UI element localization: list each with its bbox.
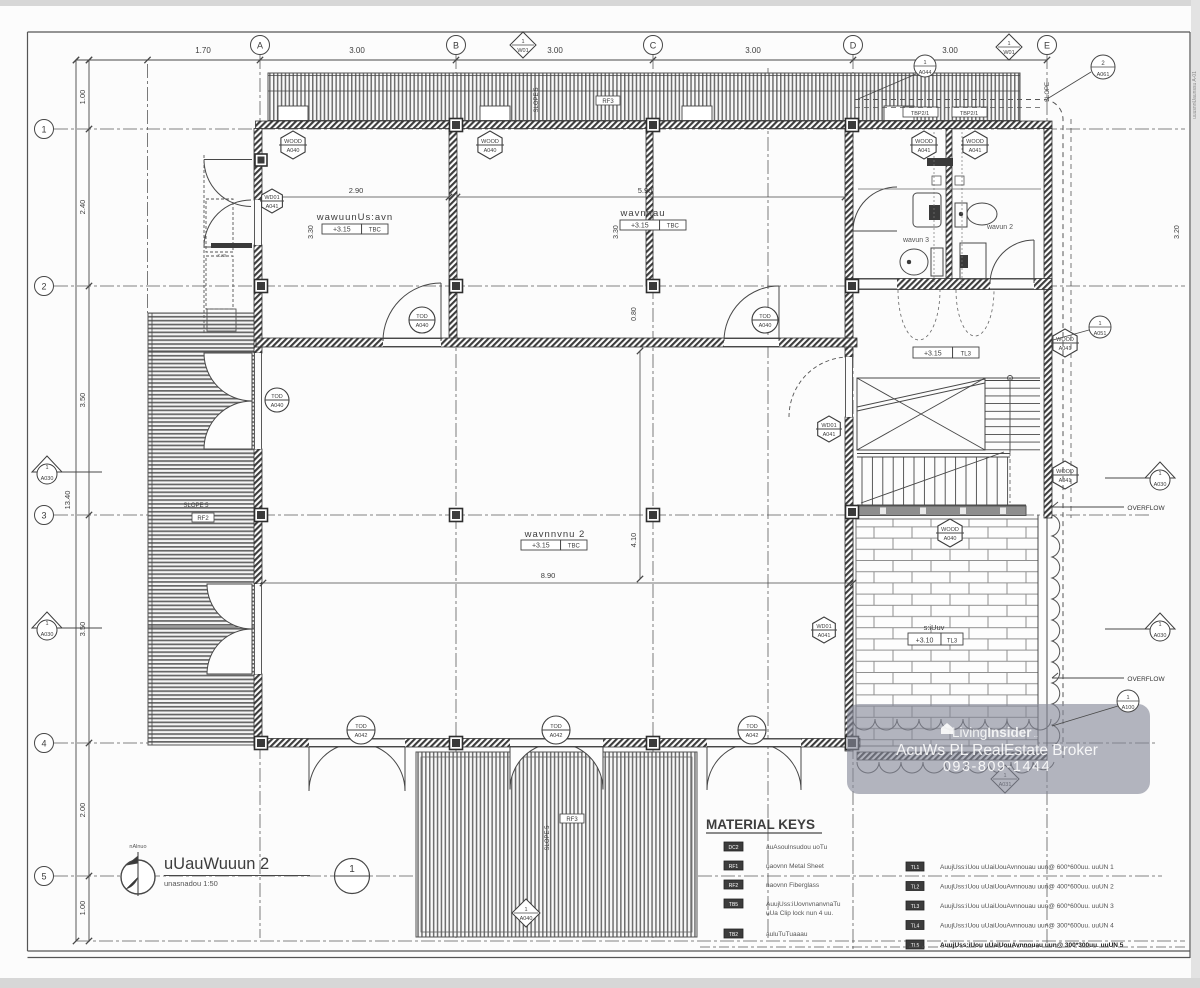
svg-text:OVERFLOW: OVERFLOW <box>1127 505 1165 512</box>
svg-text:AuujUss:iUou uUaiUouAvnnouau u: AuujUss:iUou uUaiUouAvnnouau uun@ 300*30… <box>940 942 1124 949</box>
svg-text:0.80: 0.80 <box>631 307 638 321</box>
svg-text:3.00: 3.00 <box>349 46 365 55</box>
svg-text:WD01: WD01 <box>264 195 279 201</box>
svg-text:A041: A041 <box>969 148 982 154</box>
svg-text:1: 1 <box>1126 695 1129 701</box>
svg-text:3.00: 3.00 <box>547 46 563 55</box>
svg-text:5: 5 <box>41 872 46 882</box>
svg-text:+3.15: +3.15 <box>924 351 942 358</box>
svg-text:A030: A030 <box>1154 633 1167 639</box>
svg-text:uUa Clip lock nun 4 uu.: uUa Clip lock nun 4 uu. <box>766 910 833 917</box>
svg-text:1.00: 1.00 <box>78 901 87 916</box>
svg-text:A030: A030 <box>41 476 54 482</box>
svg-text:2.40: 2.40 <box>78 200 87 215</box>
svg-text:AuujUss:iUou uUaiUouAvnnouau u: AuujUss:iUou uUaiUouAvnnouau uun@ 600*60… <box>940 864 1114 871</box>
svg-text:TB5: TB5 <box>729 902 738 908</box>
svg-text:C: C <box>650 41 657 51</box>
svg-text:WD01: WD01 <box>821 423 836 429</box>
svg-text:093-809-1444: 093-809-1444 <box>943 759 1051 775</box>
svg-text:A041: A041 <box>266 204 279 210</box>
svg-text:A030: A030 <box>41 632 54 638</box>
svg-text:1.00: 1.00 <box>78 90 87 105</box>
svg-text:WOOD: WOOD <box>941 527 959 533</box>
svg-text:3.30: 3.30 <box>613 225 620 239</box>
svg-text:uUauWuuun 2: uUauWuuun 2 <box>164 855 269 873</box>
svg-text:AuujUss:iUou uUaiUouAvnnouau u: AuujUss:iUou uUaiUouAvnnouau uun@ 400*60… <box>940 884 1114 891</box>
svg-text:TBC: TBC <box>369 228 382 234</box>
svg-text:A040: A040 <box>271 403 284 409</box>
svg-text:TL4: TL4 <box>911 924 920 930</box>
svg-text:TL5: TL5 <box>911 943 920 949</box>
svg-text:A044: A044 <box>919 70 932 76</box>
svg-text:1: 1 <box>1158 622 1161 628</box>
svg-text:RF3: RF3 <box>566 817 578 823</box>
svg-text:3.00: 3.00 <box>942 46 958 55</box>
svg-text:RF2: RF2 <box>729 883 739 889</box>
svg-text:TOD: TOD <box>759 314 771 320</box>
svg-text:3.30: 3.30 <box>308 225 315 239</box>
svg-text:wavnnvnu 2: wavnnvnu 2 <box>524 529 586 540</box>
svg-text:A040: A040 <box>520 916 533 922</box>
svg-text:SLOPE 5: SLOPE 5 <box>545 825 551 851</box>
svg-text:1: 1 <box>349 864 355 875</box>
svg-text:A040: A040 <box>484 148 497 154</box>
svg-text:TBC: TBC <box>568 544 581 550</box>
svg-text:RF1: RF1 <box>729 864 739 870</box>
svg-text:SLOPE 5: SLOPE 5 <box>534 87 540 113</box>
svg-text:wavun 3: wavun 3 <box>902 237 929 244</box>
svg-text:TL1: TL1 <box>911 865 920 871</box>
svg-text:auluTuTuaaau: auluTuTuaaau <box>766 931 808 938</box>
svg-text:3.50: 3.50 <box>78 622 87 637</box>
svg-text:AuujUss:iUou uUaiUouAvnnouau u: AuujUss:iUou uUaiUouAvnnouau uun@ 300*60… <box>940 923 1114 930</box>
svg-text:AuujUss:iUovnvnanvnaTu: AuujUss:iUovnvnanvnaTu <box>766 901 841 908</box>
svg-text:2.90: 2.90 <box>349 186 364 195</box>
svg-text:+3.15: +3.15 <box>532 543 550 550</box>
svg-text:A040: A040 <box>416 323 429 329</box>
svg-text:1.70: 1.70 <box>195 46 211 55</box>
svg-text:1: 1 <box>1098 321 1101 327</box>
svg-text:TBP2/1: TBP2/1 <box>960 111 978 117</box>
svg-text:3.00: 3.00 <box>745 46 761 55</box>
svg-text:WOOD: WOOD <box>915 139 933 145</box>
svg-text:1: 1 <box>45 465 48 471</box>
svg-text:A040: A040 <box>944 536 957 542</box>
svg-text:W01: W01 <box>517 48 528 54</box>
svg-text:wavun 2: wavun 2 <box>986 224 1013 231</box>
svg-text:W01: W01 <box>1003 50 1014 56</box>
svg-text:1: 1 <box>1007 41 1010 47</box>
svg-text:A042: A042 <box>746 733 759 739</box>
svg-text:A041: A041 <box>1059 478 1072 484</box>
svg-text:naovnn Fiberglass: naovnn Fiberglass <box>766 882 820 889</box>
svg-text:B: B <box>453 41 459 51</box>
svg-text:AcuWs PL RealEstate Broker: AcuWs PL RealEstate Broker <box>896 742 1098 759</box>
svg-text:RF2: RF2 <box>197 516 209 522</box>
svg-text:naovnn Metal Sheet: naovnn Metal Sheet <box>766 863 824 870</box>
svg-text:D: D <box>850 41 857 51</box>
svg-text:SLOPE: SLOPE <box>1045 82 1051 102</box>
svg-text:unasnadou 1:50: unasnadou 1:50 <box>164 879 218 888</box>
svg-text:3.50: 3.50 <box>78 393 87 408</box>
svg-text:RF3: RF3 <box>602 99 614 105</box>
svg-text:DC2: DC2 <box>728 845 738 851</box>
svg-text:TBP2/1: TBP2/1 <box>911 111 929 117</box>
svg-text:TOD: TOD <box>416 314 428 320</box>
svg-text:LivingInsider ..: LivingInsider .. <box>952 725 1038 740</box>
svg-text:s:iUuv: s:iUuv <box>924 623 945 632</box>
svg-text:2.00: 2.00 <box>78 803 87 818</box>
svg-text:1: 1 <box>45 621 48 627</box>
svg-text:1: 1 <box>521 39 524 45</box>
svg-text:WOOD: WOOD <box>481 139 499 145</box>
svg-text:A041: A041 <box>818 633 831 639</box>
svg-text:uuusnnUaunssu A-01: uuusnnUaunssu A-01 <box>1192 71 1198 119</box>
svg-text:A041: A041 <box>1059 346 1072 352</box>
svg-text:A041: A041 <box>823 432 836 438</box>
svg-text:A100: A100 <box>1122 705 1135 711</box>
svg-text:TOD: TOD <box>746 724 758 730</box>
svg-text:13.40: 13.40 <box>63 491 72 510</box>
svg-text:1: 1 <box>1158 471 1161 477</box>
svg-text:TB2: TB2 <box>729 932 738 938</box>
svg-text:5.90: 5.90 <box>638 186 653 195</box>
svg-text:WD01: WD01 <box>816 624 831 630</box>
svg-text:A041: A041 <box>918 148 931 154</box>
svg-text:MATERIAL KEYS: MATERIAL KEYS <box>706 817 815 832</box>
svg-text:auAsoulnsudou uoTu: auAsoulnsudou uoTu <box>766 844 828 851</box>
svg-text:TL3: TL3 <box>961 352 972 358</box>
svg-text:TOD: TOD <box>271 394 283 400</box>
svg-text:1: 1 <box>524 907 527 913</box>
svg-text:A051: A051 <box>1094 331 1107 337</box>
svg-text:4: 4 <box>41 739 46 749</box>
svg-text:A030: A030 <box>1154 482 1167 488</box>
svg-text:TL2: TL2 <box>911 885 920 891</box>
svg-text:3.20: 3.20 <box>1174 225 1181 239</box>
svg-text:WOOD: WOOD <box>284 139 302 145</box>
svg-text:+3.15: +3.15 <box>631 223 649 230</box>
svg-text:8.90: 8.90 <box>541 571 556 580</box>
svg-text:A061: A061 <box>1097 72 1110 78</box>
svg-text:A040: A040 <box>287 148 300 154</box>
svg-text:x.xx: x.xx <box>218 253 227 259</box>
svg-text:3: 3 <box>41 511 46 521</box>
svg-text:A042: A042 <box>550 733 563 739</box>
svg-text:1: 1 <box>923 60 926 66</box>
svg-text:TL3: TL3 <box>911 904 920 910</box>
svg-text:2: 2 <box>41 282 46 292</box>
svg-text:wavnnau: wavnnau <box>619 208 665 219</box>
svg-text:+3.15: +3.15 <box>333 227 351 234</box>
svg-text:OVERFLOW: OVERFLOW <box>1127 676 1165 683</box>
svg-text:TBC: TBC <box>667 224 680 230</box>
svg-text:A040: A040 <box>759 323 772 329</box>
svg-text:SLOPE 5: SLOPE 5 <box>183 503 209 509</box>
svg-text:E: E <box>1044 41 1050 51</box>
svg-text:A: A <box>257 41 263 51</box>
svg-text:TOD: TOD <box>550 724 562 730</box>
svg-text:4.10: 4.10 <box>629 533 638 548</box>
svg-text:AuujUss:iUou uUaiUouAvnnouau u: AuujUss:iUou uUaiUouAvnnouau uun@ 600*60… <box>940 903 1114 910</box>
svg-text:+3.10: +3.10 <box>916 638 934 645</box>
svg-text:TL3: TL3 <box>947 639 958 645</box>
svg-text:wawuunUs:avn: wawuunUs:avn <box>316 212 393 223</box>
svg-text:WOOD: WOOD <box>966 139 984 145</box>
svg-text:A042: A042 <box>355 733 368 739</box>
svg-text:TOD: TOD <box>355 724 367 730</box>
svg-text:1: 1 <box>41 125 46 135</box>
svg-text:nAlnuo: nAlnuo <box>129 844 146 850</box>
